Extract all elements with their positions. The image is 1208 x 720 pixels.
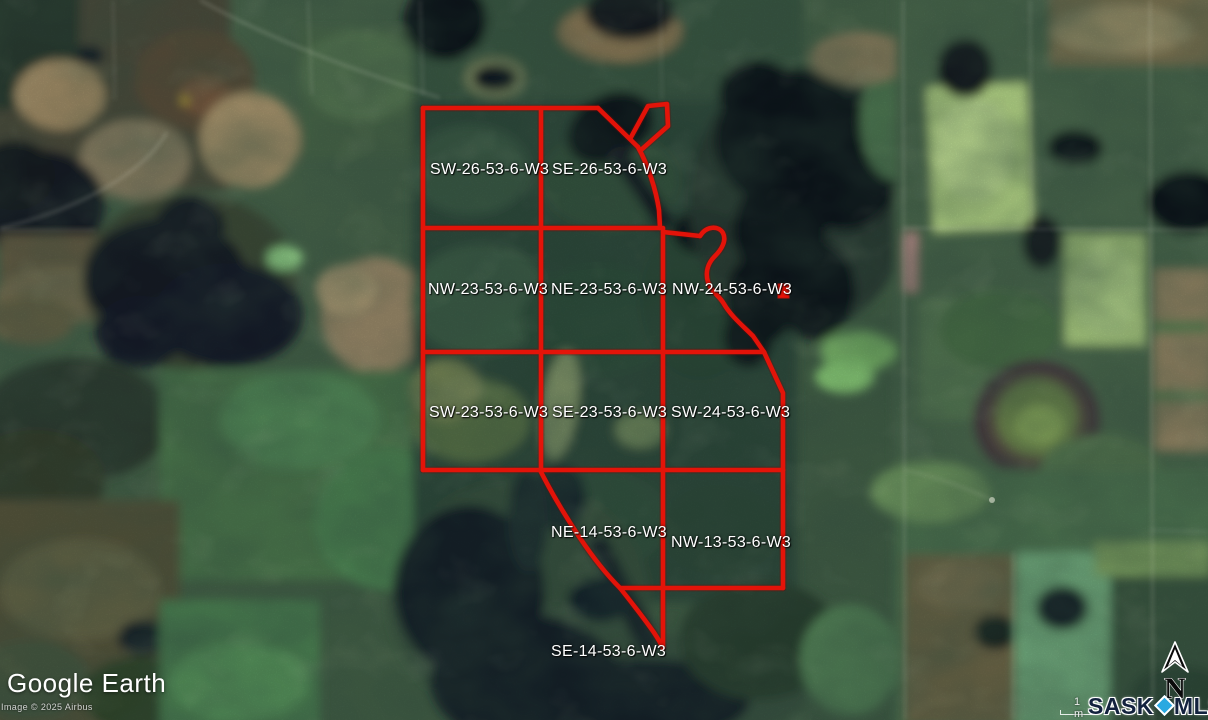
scale-label: 1 m xyxy=(1074,696,1083,720)
parcel-label: NE-23-53-6-W3 xyxy=(551,281,667,299)
map-viewport[interactable]: N SW-26-53-6-W3 SE-26-53-6-W3 NW-23-53-6… xyxy=(0,0,1208,720)
sask-mls-watermark: SASKMLS® xyxy=(1088,693,1208,720)
mls-text: MLS xyxy=(1174,693,1208,719)
parcel-label: NW-13-53-6-W3 xyxy=(671,534,791,552)
parcel-label: NW-24-53-6-W3 xyxy=(672,281,792,299)
parcel-label: SW-23-53-6-W3 xyxy=(429,404,548,422)
parcel-label: SE-26-53-6-W3 xyxy=(552,161,667,179)
sask-text: SASK xyxy=(1088,693,1154,719)
parcel-label: NW-23-53-6-W3 xyxy=(428,281,548,299)
terrain-grain xyxy=(0,0,1208,720)
google-earth-logo: Google Earth xyxy=(7,668,166,699)
parcel-label: SE-14-53-6-W3 xyxy=(551,643,666,661)
imagery-copyright: Image © 2025 Airbus xyxy=(1,702,93,712)
road-dot xyxy=(989,497,995,503)
parcel-label: SW-24-53-6-W3 xyxy=(671,404,790,422)
satellite-map[interactable]: N xyxy=(0,0,1208,720)
mls-diamond-icon xyxy=(1154,695,1175,716)
parcel-label: SE-23-53-6-W3 xyxy=(552,404,667,422)
parcel-label: SW-26-53-6-W3 xyxy=(430,161,549,179)
parcel-label: NE-14-53-6-W3 xyxy=(551,524,667,542)
